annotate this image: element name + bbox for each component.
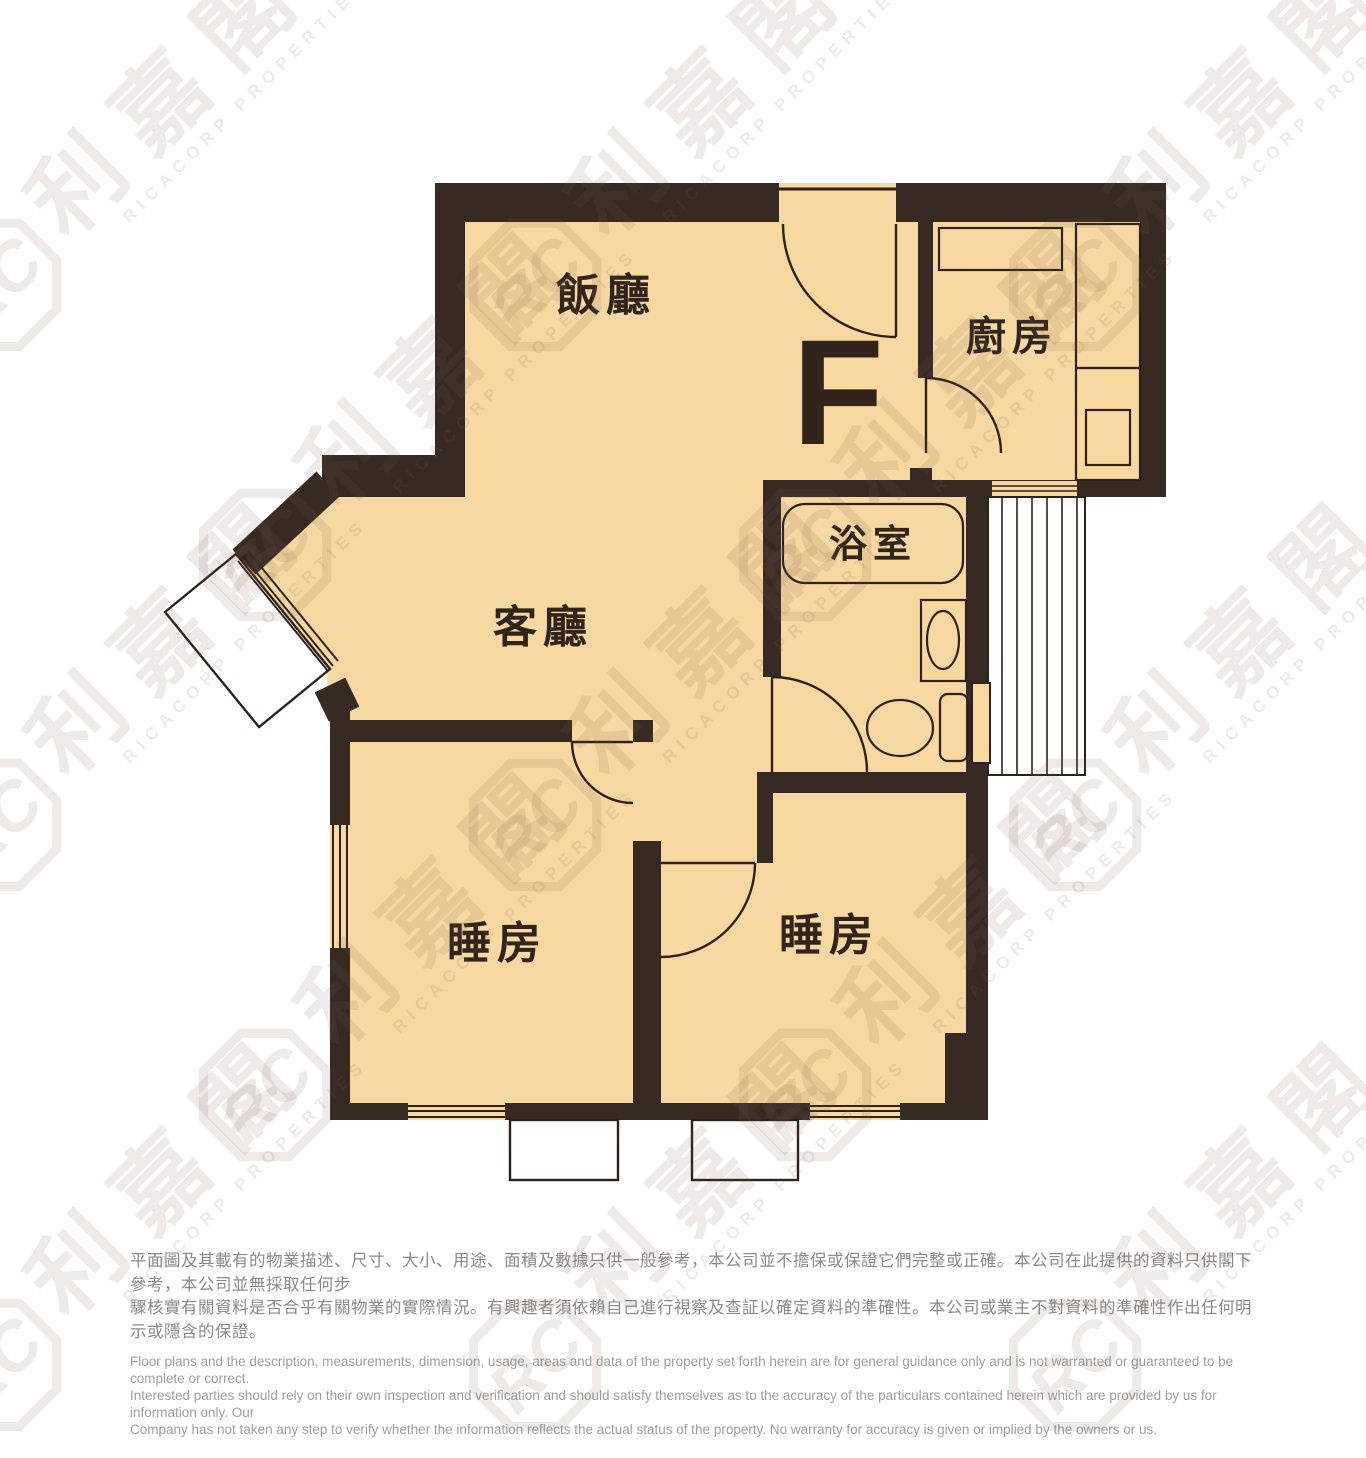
floorplan-canvas: RC 利嘉閣 RICACORP PROPERTIES RC 利嘉閣 RICACO… [0,0,1366,1366]
room-label-dining: 飯廳 [556,274,656,318]
bedroom1-bottom-window [408,1103,505,1120]
disclaimer-en-line1: Floor plans and the description, measure… [130,1353,1260,1387]
disclaimer-en-line3: Company has not taken any step to verify… [130,1421,1260,1438]
room-label-kitchen: 廚房 [966,317,1058,357]
room-label-bedroom1: 睡房 [447,922,547,966]
room-label-bathroom: 浴室 [829,526,917,564]
floorplan-drawing [0,0,1366,1366]
room-label-bedroom2: 睡房 [779,914,879,958]
external-platform [972,497,1085,775]
room-label-living: 客廳 [493,606,593,650]
disclaimer: 平面圖及其載有的物業描述、尺寸、大小、用途、面積及數據只供一般參考，本公司並不擔… [130,1250,1260,1438]
disclaimer-chinese: 平面圖及其載有的物業描述、尺寸、大小、用途、面積及數據只供一般參考，本公司並不擔… [130,1250,1260,1344]
ac-boxes [510,1120,798,1180]
disclaimer-zh-line2: 驟核實有關資料是否合乎有關物業的實際情況。有興趣者須依賴自己進行視察及查証以確定… [130,1297,1260,1344]
service-duct [972,683,990,763]
unit-label: F [792,317,884,467]
bedroom2-bottom-window [810,1103,900,1120]
bedroom1-side-window [330,825,350,948]
kitchen-platform-window [992,481,1077,496]
disclaimer-zh-line1: 平面圖及其載有的物業描述、尺寸、大小、用途、面積及數據只供一般參考，本公司並不擔… [130,1250,1260,1297]
disclaimer-en-line2: Interested parties should rely on their … [130,1387,1260,1421]
